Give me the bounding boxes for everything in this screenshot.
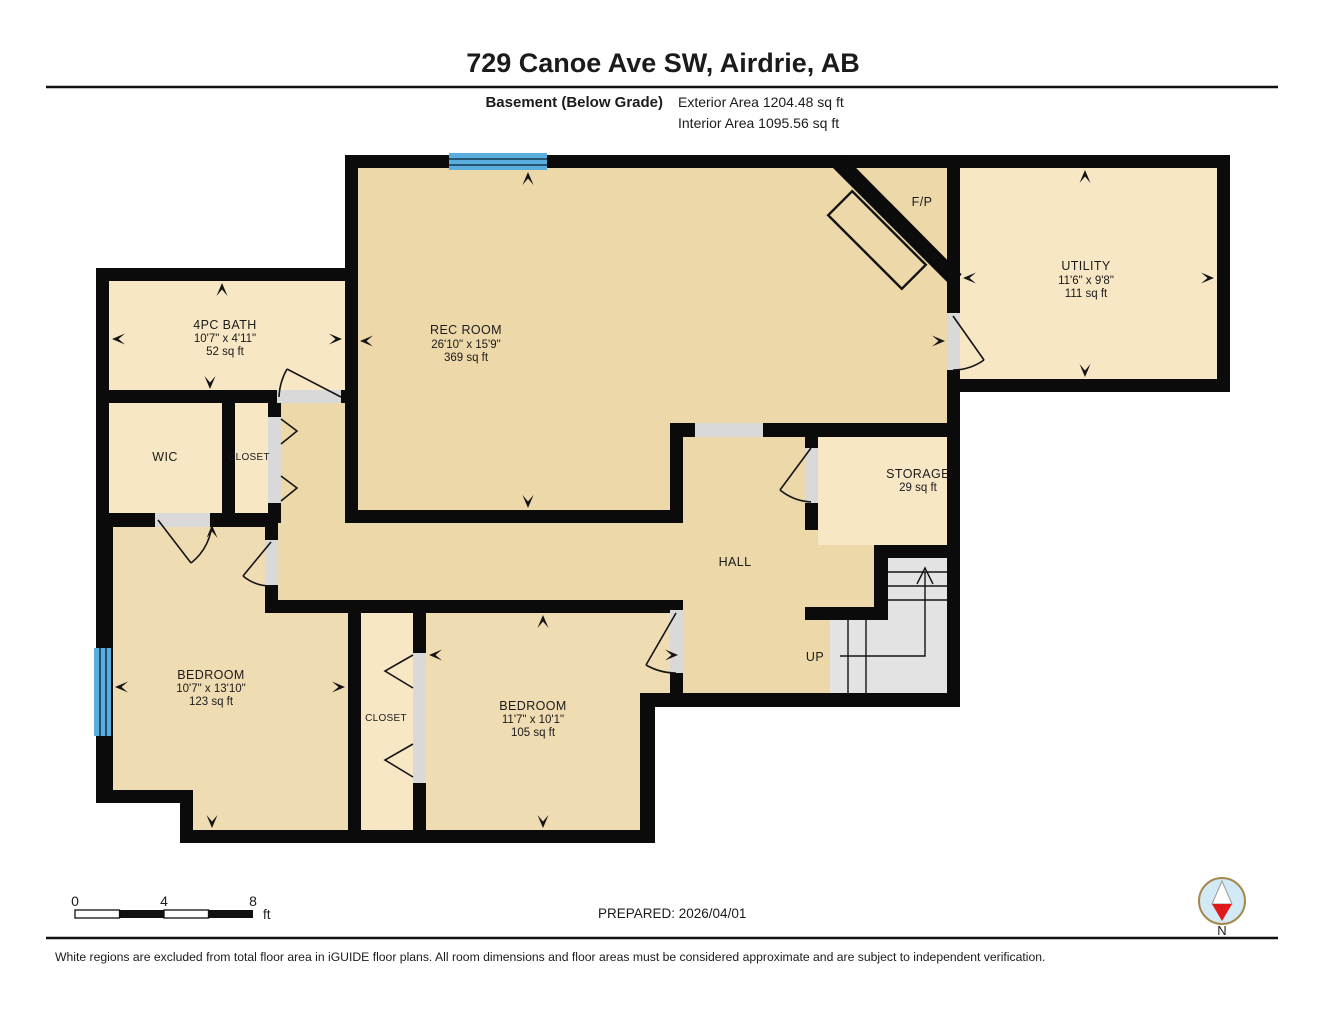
room-label-bath: 4PC BATH	[193, 318, 256, 332]
disclaimer-text: White regions are excluded from total fl…	[55, 950, 1045, 964]
room-dims-rec-room: 26'10" x 15'9"	[431, 339, 500, 351]
closet1-bifold-opening	[268, 417, 281, 503]
room-dims-bedroom1: 10'7" x 13'10"	[176, 683, 245, 695]
exterior-area: Exterior Area 1204.48 sq ft	[678, 94, 844, 110]
scale-start: 0	[71, 893, 79, 909]
scale-bar: 0 4 8 ft	[71, 893, 271, 922]
window-top	[449, 153, 547, 170]
room-label-bedroom2: BEDROOM	[499, 699, 566, 713]
room-label-closet2: CLOSET	[365, 713, 407, 724]
scale-end: 8	[249, 893, 257, 909]
stairs-up-label: UP	[806, 650, 824, 664]
room-bedroom1-lower	[193, 790, 348, 830]
room-utility	[960, 168, 1217, 379]
room-label-closet1: CLOSET	[228, 452, 270, 463]
room-label-rec-room: REC ROOM	[430, 323, 502, 337]
room-area-storage: 29 sq ft	[899, 482, 938, 494]
room-dims-utility: 11'6" x 9'8"	[1058, 275, 1114, 287]
scale-unit: ft	[263, 907, 271, 922]
room-bedroom1-extension	[113, 527, 265, 613]
room-area-bedroom1: 123 sq ft	[189, 696, 234, 708]
room-area-bath: 52 sq ft	[206, 346, 245, 358]
utility-door-opening	[947, 313, 960, 370]
room-label-wic: WIC	[152, 450, 178, 464]
room-label-bedroom1: BEDROOM	[177, 668, 244, 682]
room-area-rec-room: 369 sq ft	[444, 352, 489, 364]
room-dims-bedroom2: 11'7" x 10'1"	[502, 714, 564, 726]
window-left	[94, 648, 111, 736]
floor-label: Basement (Below Grade)	[485, 94, 663, 111]
interior-area: Interior Area 1095.56 sq ft	[678, 115, 839, 131]
room-label-storage: STORAGE	[886, 467, 950, 481]
room-area-bedroom2: 105 sq ft	[511, 727, 556, 739]
scale-mid: 4	[160, 893, 168, 909]
room-area-utility: 111 sq ft	[1065, 288, 1108, 300]
prepared-date: PREPARED: 2026/04/01	[598, 906, 746, 921]
compass-icon: N	[1199, 878, 1245, 938]
page-title: 729 Canoe Ave SW, Airdrie, AB	[466, 48, 860, 78]
floor-plan-canvas: 729 Canoe Ave SW, Airdrie, AB Basement (…	[0, 0, 1325, 1024]
room-dims-bath: 10'7" x 4'11"	[194, 333, 256, 345]
storage-door-opening	[805, 448, 818, 503]
room-label-hall: HALL	[719, 555, 752, 569]
room-label-fireplace: F/P	[912, 195, 933, 209]
stairs-upper-run	[888, 558, 947, 693]
rec-hall-opening	[695, 423, 763, 437]
wic-door-opening	[155, 513, 210, 527]
room-label-utility: UTILITY	[1061, 259, 1111, 273]
compass-north-label: N	[1217, 923, 1226, 938]
closet2-bifold-opening	[413, 653, 426, 783]
floorplan-page: { "header": { "title": "729 Canoe Ave SW…	[0, 0, 1325, 1024]
room-hall-corridor	[278, 523, 683, 600]
